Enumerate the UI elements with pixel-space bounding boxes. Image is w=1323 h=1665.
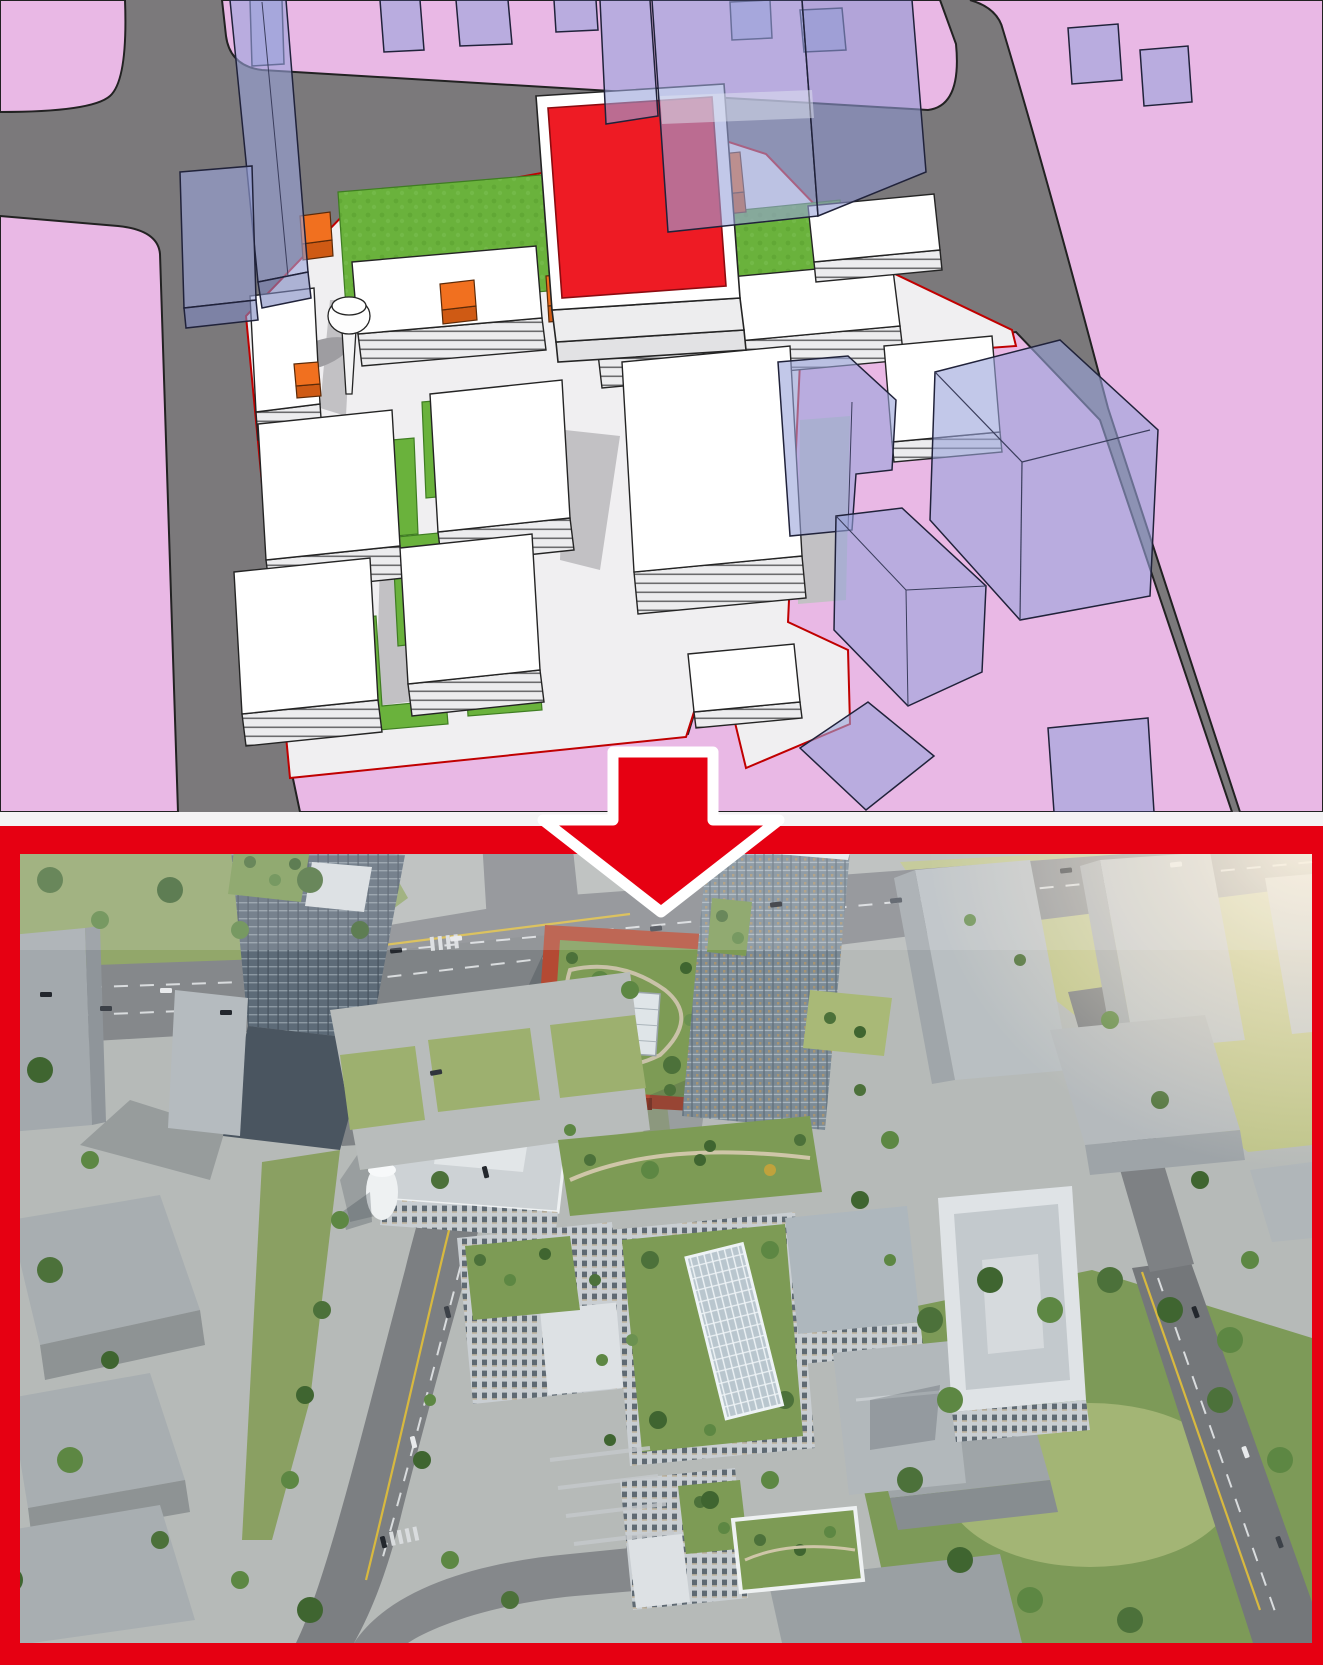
building-b4	[622, 346, 806, 614]
render-frame	[0, 826, 1323, 1665]
transform-arrow	[480, 690, 842, 930]
building-b7	[430, 380, 574, 564]
building-b9	[400, 534, 544, 716]
page	[0, 0, 1323, 1665]
arrow-down-icon	[543, 752, 779, 912]
small-garden-building	[733, 1508, 863, 1592]
pink-block-bottomleft	[0, 216, 178, 812]
pink-block-topleft	[0, 0, 125, 112]
blue-box-road	[180, 166, 258, 328]
aerial-render	[0, 840, 1312, 1643]
courtyard-block-southwest	[620, 1468, 748, 1610]
courtyard-block-west	[457, 1222, 630, 1404]
building-b8	[234, 558, 382, 746]
blue-box-bottom-2	[1048, 718, 1154, 812]
